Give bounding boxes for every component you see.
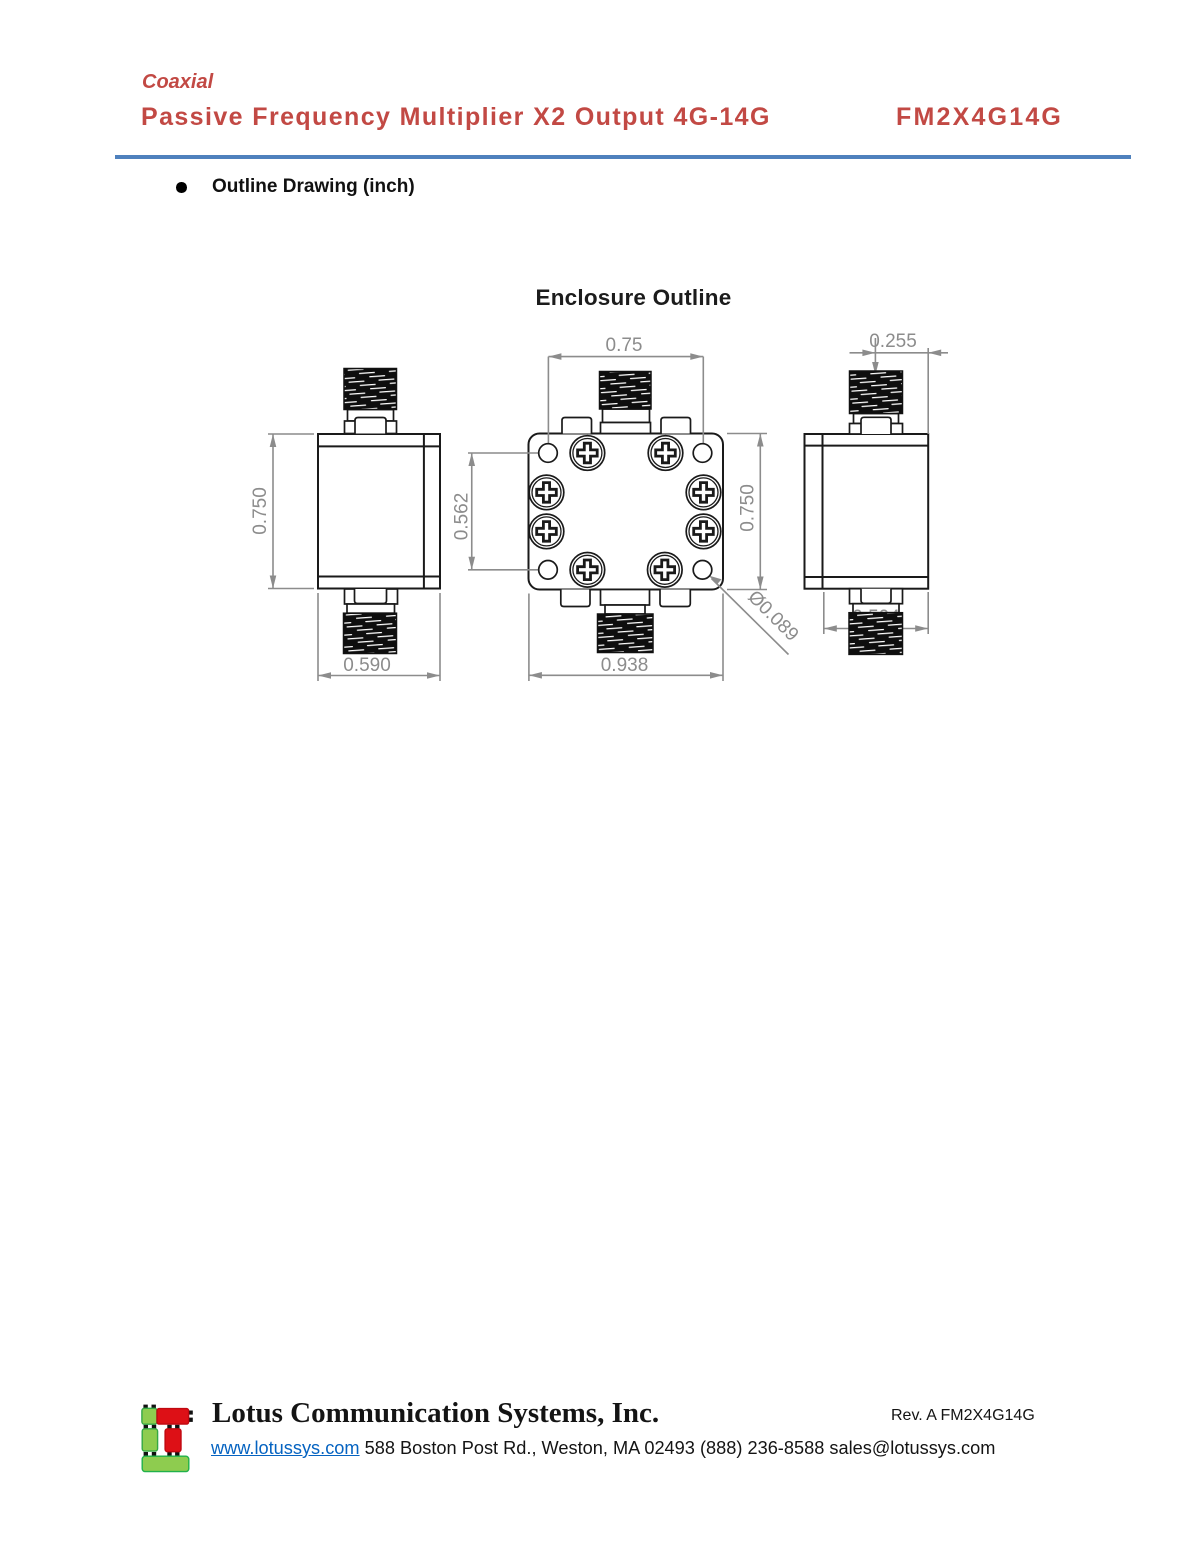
svg-text:0.255: 0.255 (869, 331, 917, 352)
svg-text:0.75: 0.75 (606, 335, 643, 356)
svg-text:Ø0.089: Ø0.089 (743, 587, 802, 646)
svg-text:0.750: 0.750 (738, 484, 759, 532)
svg-text:Enclosure Outline: Enclosure Outline (536, 285, 732, 310)
svg-text:0.750: 0.750 (250, 487, 271, 535)
svg-text:0.562: 0.562 (452, 493, 473, 541)
svg-text:0.938: 0.938 (601, 655, 649, 676)
svg-text:0.590: 0.590 (343, 655, 391, 676)
